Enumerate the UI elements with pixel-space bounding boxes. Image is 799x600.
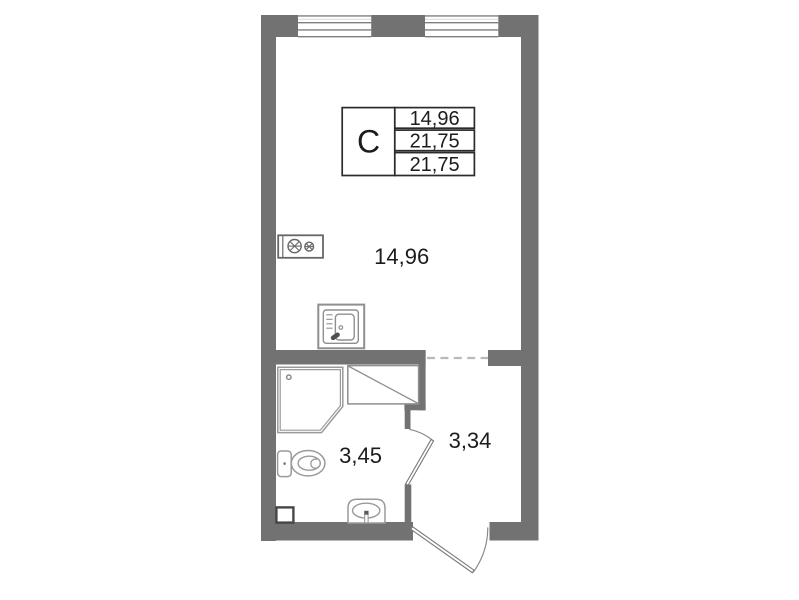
- svg-text:3,45: 3,45: [339, 443, 382, 468]
- svg-text:С: С: [357, 124, 380, 160]
- svg-text:14,96: 14,96: [410, 108, 460, 130]
- svg-text:14,96: 14,96: [374, 244, 429, 269]
- svg-text:21,75: 21,75: [410, 154, 460, 176]
- svg-text:3,34: 3,34: [449, 428, 492, 453]
- svg-text:21,75: 21,75: [410, 130, 460, 152]
